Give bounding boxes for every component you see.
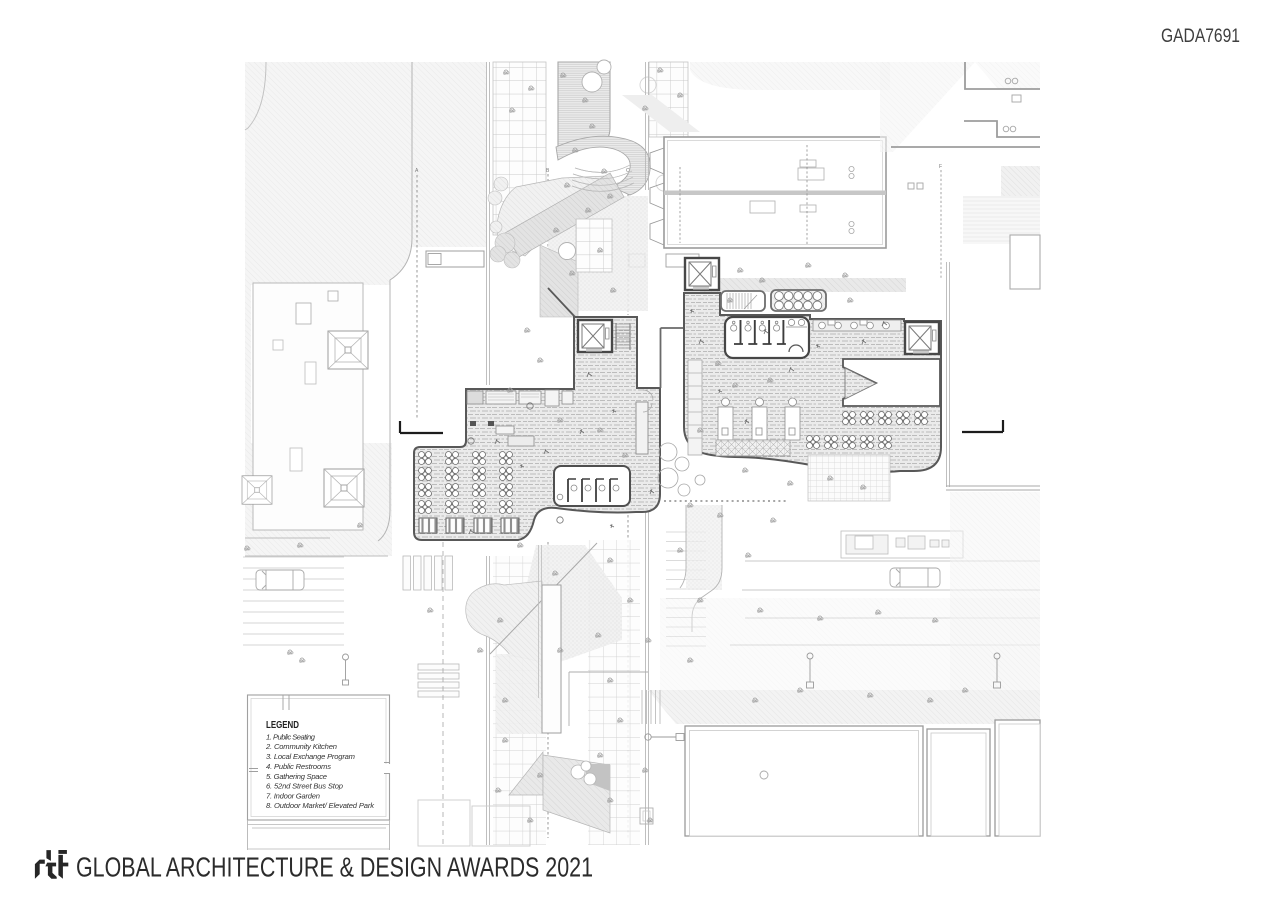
svg-text:3. Local Exchange Program: 3. Local Exchange Program	[266, 752, 355, 761]
svg-text:GLOBAL ARCHITECTURE & DESIGN A: GLOBAL ARCHITECTURE & DESIGN AWARDS 2021	[76, 852, 593, 883]
svg-text:5. Gathering Space: 5. Gathering Space	[266, 772, 327, 781]
svg-text:F: F	[939, 164, 942, 170]
svg-text:7. Indoor Garden: 7. Indoor Garden	[266, 791, 320, 800]
svg-text:8. Outdoor Market/ Elevated Pa: 8. Outdoor Market/ Elevated Park	[266, 801, 375, 810]
svg-text:4. Public Restrooms: 4. Public Restrooms	[266, 762, 331, 771]
svg-text:1. Public Seating: 1. Public Seating	[266, 732, 316, 741]
svg-text:2. Community Kitchen: 2. Community Kitchen	[265, 742, 337, 751]
svg-text:GADA7691: GADA7691	[1161, 26, 1240, 47]
svg-text:LEGEND: LEGEND	[266, 720, 299, 731]
svg-text:6. 52nd Street Bus Stop: 6. 52nd Street Bus Stop	[266, 782, 343, 791]
